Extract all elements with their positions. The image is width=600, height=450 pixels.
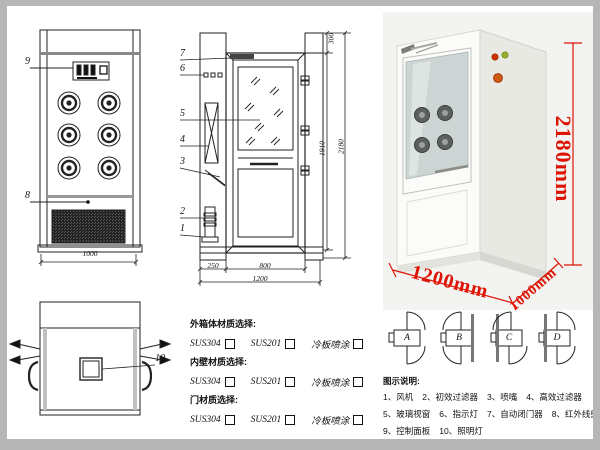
dim-width-front: 1000 [65, 249, 115, 258]
deflector [205, 170, 225, 185]
material-selection: 外箱体材质选择: SUS304 SUS201 冷板喷涂 内壁材质选择: SUS3… [190, 315, 385, 429]
legend-item: 1、风机 [383, 389, 413, 406]
dim-250: 250 [197, 261, 229, 270]
legend-item: 4、高效过滤器 [526, 389, 582, 406]
door [226, 53, 305, 253]
glass-window [238, 67, 293, 150]
material-section-label: 外箱体材质选择: [190, 315, 385, 334]
door-swing-arrows [10, 340, 170, 364]
legend-item: 2、初效过滤器 [422, 389, 478, 406]
ceiling-lamp [80, 358, 102, 380]
dim-300: 300 [327, 25, 336, 53]
nozzles [58, 92, 120, 179]
glass-hatching [245, 77, 283, 145]
callout-6: 6 [180, 64, 185, 74]
orange-button [494, 74, 503, 83]
material-options-row: SUS304 SUS201 冷板喷涂 [190, 334, 385, 353]
callout-10: 10 [155, 354, 165, 364]
material-checkbox[interactable] [353, 339, 363, 349]
material-options-row: SUS304 SUS201 冷板喷涂 [190, 372, 385, 391]
photo-dim-height: 2180mm [552, 115, 574, 203]
door-config-label: D [549, 333, 565, 343]
door-config-label: A [399, 333, 415, 343]
door-config-label: C [501, 333, 517, 343]
door-config-a: A [386, 306, 430, 368]
left-handle [29, 362, 38, 390]
material-checkbox[interactable] [285, 415, 295, 425]
material-section-label: 门材质选择: [190, 391, 385, 410]
legend-item: 10、照明灯 [439, 423, 482, 440]
material-option: SUS304 [190, 415, 221, 425]
legend-item: 5、玻璃视窗 [383, 406, 430, 423]
material-option: 冷板喷涂 [311, 413, 349, 427]
callout-8: 8 [25, 191, 30, 201]
door-config-d: D [536, 306, 580, 368]
material-option: SUS201 [251, 377, 282, 387]
page-border-right [593, 0, 600, 450]
material-option: SUS304 [190, 377, 221, 387]
grille [52, 210, 125, 243]
legend-row: 9、控制面板 10、照明灯 [383, 423, 595, 440]
front-view-drawing [20, 25, 180, 270]
material-option: SUS304 [190, 339, 221, 349]
control-panel [73, 62, 109, 80]
legend-row: 5、玻璃视窗 6、指示灯 7、自动闭门器 8、红外线感应器 [383, 406, 595, 423]
page-border-left [0, 0, 7, 450]
door-closer [230, 54, 254, 59]
page-border-bottom [0, 439, 600, 450]
door-config-b: B [438, 306, 482, 368]
material-section-label: 内壁材质选择: [190, 353, 385, 372]
door-config-c: C [488, 306, 532, 368]
dim-800: 800 [249, 261, 281, 270]
material-checkbox[interactable] [225, 415, 235, 425]
material-checkbox[interactable] [285, 377, 295, 387]
material-option: 冷板喷涂 [311, 337, 349, 351]
callout-2: 2 [180, 207, 185, 217]
legend-item: 9、控制面板 [383, 423, 430, 440]
callout-5: 5 [180, 109, 185, 119]
legend: 图示说明: 1、风机 2、初效过滤器 3、喷嘴 4、高效过滤器 5、玻璃视窗 6… [383, 373, 595, 440]
material-option: SUS201 [251, 415, 282, 425]
callout-1: 1 [180, 224, 185, 234]
top-band [40, 52, 140, 55]
cabinet-side [480, 30, 546, 272]
legend-item: 3、喷嘴 [487, 389, 517, 406]
dim-2180: 2180 [337, 129, 346, 165]
callout-9: 9 [25, 57, 30, 67]
callout-7: 7 [180, 49, 185, 59]
legend-item: 7、自动闭门器 [487, 406, 543, 423]
leader-lines [180, 58, 260, 237]
callout-3: 3 [180, 157, 185, 167]
material-option: 冷板喷涂 [311, 375, 349, 389]
dim-1200: 1200 [244, 274, 276, 283]
material-checkbox[interactable] [225, 377, 235, 387]
material-options-row: SUS304 SUS201 冷板喷涂 [190, 410, 385, 429]
legend-item: 6、指示灯 [439, 406, 478, 423]
red-light [492, 54, 498, 60]
legend-title: 图示说明: [383, 373, 595, 389]
air-shower-spec-sheet: { "colors": {"dim_red": "#dd1404", "line… [0, 0, 600, 450]
material-checkbox[interactable] [225, 339, 235, 349]
callout-4: 4 [180, 135, 185, 145]
legend-row: 1、风机 2、初效过滤器 3、喷嘴 4、高效过滤器 [383, 389, 595, 406]
material-option: SUS201 [251, 339, 282, 349]
mid-band [47, 195, 133, 198]
material-checkbox[interactable] [353, 377, 363, 387]
door-lower-panel [238, 169, 293, 237]
filter [205, 103, 218, 163]
green-light [502, 52, 508, 58]
dim-1910: 1910 [318, 131, 327, 167]
material-checkbox[interactable] [353, 415, 363, 425]
door-config-label: B [451, 333, 467, 343]
material-checkbox[interactable] [285, 339, 295, 349]
page-border-top [0, 0, 600, 6]
